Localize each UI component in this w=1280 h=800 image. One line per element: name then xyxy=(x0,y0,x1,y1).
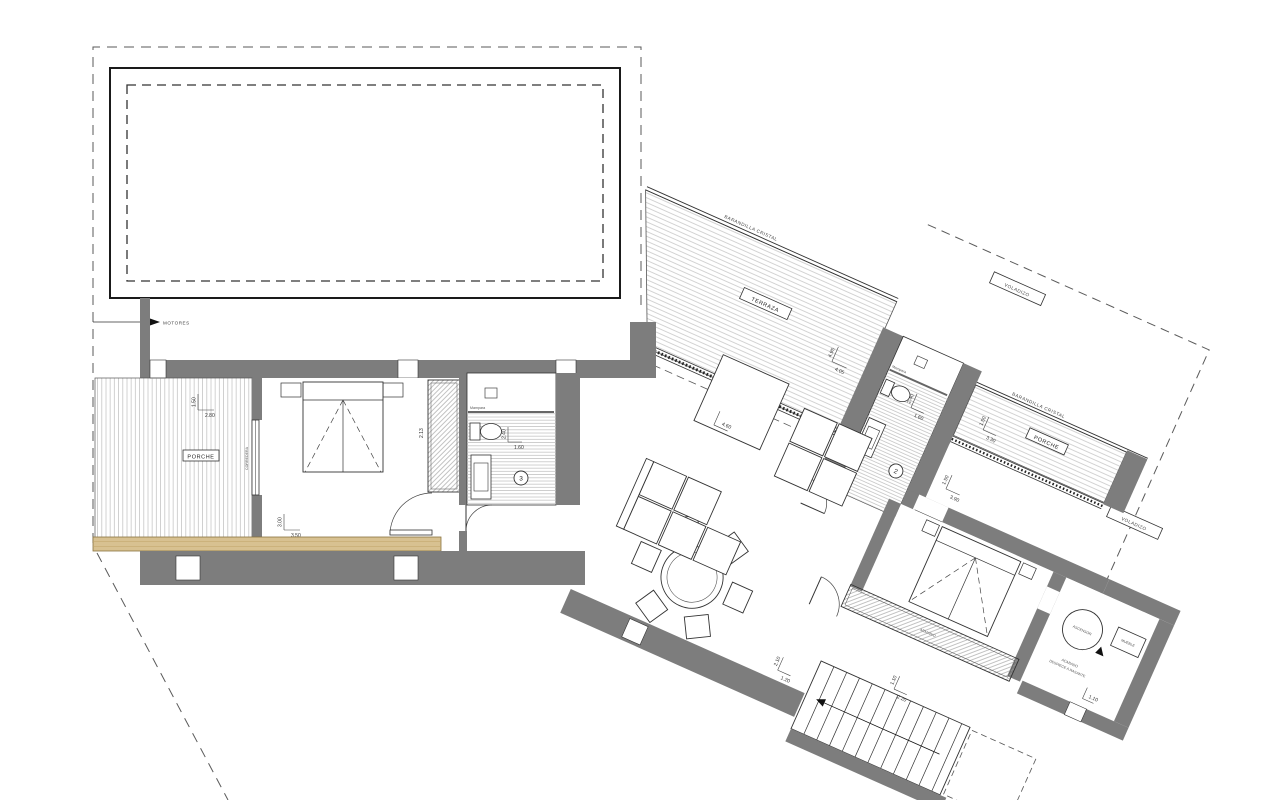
window-opening xyxy=(176,556,200,580)
window-opening xyxy=(150,360,166,378)
toilet-icon xyxy=(470,423,502,440)
motores-label: MOTORES xyxy=(163,321,190,326)
wall xyxy=(140,551,585,585)
svg-text:1.60: 1.60 xyxy=(514,445,524,451)
window-opening xyxy=(398,360,418,378)
porch-left: 1.50 2.80 PORCHE CORREDERA xyxy=(95,378,264,538)
wall xyxy=(252,495,262,537)
wall xyxy=(556,373,580,505)
svg-text:3.00: 3.00 xyxy=(278,517,284,527)
porch-left-label: PORCHE xyxy=(187,455,214,461)
window-opening xyxy=(394,556,418,580)
wardrobe-dimension: 2.13 xyxy=(419,428,425,438)
bath1-number: 3 xyxy=(519,476,523,483)
swimming-pool xyxy=(110,68,620,298)
svg-text:2.80: 2.80 xyxy=(205,413,215,419)
bedroom-1: 2.13 3.00 3.50 xyxy=(252,378,460,539)
svg-text:1.50: 1.50 xyxy=(192,397,198,407)
svg-text:2.40: 2.40 xyxy=(502,429,508,439)
wall xyxy=(252,378,262,420)
wall xyxy=(630,322,656,378)
sink-icon xyxy=(471,455,491,499)
wall xyxy=(459,373,467,505)
floor-plan-canvas: VOLADIZO VOLADIZO BARANDILLA CRISTAL TER… xyxy=(0,0,1280,800)
door-leaf xyxy=(390,530,432,535)
sliding-window-label: CORREDERA xyxy=(245,446,249,470)
wall xyxy=(459,531,467,551)
timber-deck-strip xyxy=(93,537,441,551)
shower-screen-label: Mampara xyxy=(470,406,485,410)
